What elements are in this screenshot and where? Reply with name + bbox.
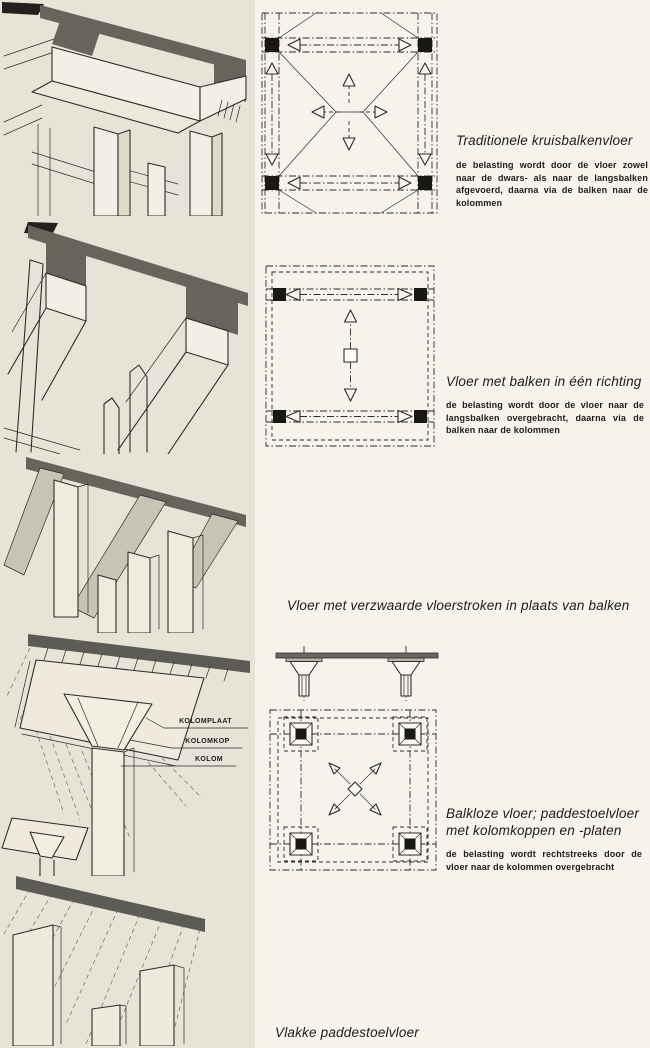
label-kolomkop: KOLOMKOP [170, 737, 245, 746]
load-direction-arrows [344, 310, 357, 401]
kruisbalkenvloer-plan-svg [258, 8, 443, 214]
title-balkloze-vloer-line1: Balkloze vloer; paddestoelvloer [446, 805, 639, 822]
title-balkloze-vloer: Balkloze vloer; paddestoelvloer met kolo… [446, 805, 639, 839]
column-shaft [92, 748, 134, 876]
title-vlakke-paddestoelvloer: Vlakke paddestoelvloer [275, 1025, 419, 1040]
paddestoelvloer-plan-svg [262, 706, 444, 876]
columns [104, 365, 147, 454]
kruisbalkenvloer-isometric-svg [2, 2, 252, 216]
beam-span-arrows [266, 39, 431, 189]
plan-diagram-kruisbalkenvloer [258, 8, 443, 214]
scanned-textbook-page: Traditionele kruisbalkenvloer de belasti… [0, 0, 650, 1048]
second-mushroom-column [2, 818, 88, 876]
columns [13, 925, 184, 1046]
vlakke-paddestoelvloer-isometric-svg [0, 876, 250, 1046]
description-balkloze-vloer: de belasting wordt rechtstreeks door de … [446, 848, 642, 873]
verzwaarde-vloerstroken-isometric-svg [0, 455, 250, 633]
title-balken-een-richting: Vloer met balken in één richting [446, 374, 642, 389]
iso-drawing-vlakke-paddestoelvloer [0, 876, 250, 1046]
corner-columns [265, 38, 432, 190]
description-balken-een-richting: de belasting wordt door de vloer naar de… [446, 399, 644, 437]
iso-drawing-verzwaarde-vloerstroken [0, 455, 250, 633]
columns [38, 124, 222, 216]
title-verzwaarde-vloerstroken: Vloer met verzwaarde vloerstroken in pla… [287, 598, 629, 613]
title-balkloze-vloer-line2: met kolomkoppen en -platen [446, 822, 639, 839]
label-kolom: KOLOM [178, 755, 240, 764]
label-kolomplaat: KOLOMPLAAT [163, 717, 248, 726]
balken-een-richting-isometric-svg [0, 222, 252, 454]
balken-een-richting-plan-svg [260, 262, 440, 452]
title-kruisbalkenvloer: Traditionele kruisbalkenvloer [456, 133, 633, 148]
slab [16, 876, 205, 932]
paddestoelvloer-elevation-svg [262, 644, 444, 704]
load-direction-arrows [329, 763, 381, 815]
description-kruisbalkenvloer: de belasting wordt door de vloer zowel n… [456, 159, 648, 209]
iso-drawing-kruisbalkenvloer [2, 2, 252, 216]
iso-drawing-balken-een-richting [0, 222, 252, 454]
elevation-paddestoelvloer [262, 644, 444, 704]
plan-diagram-balken-een-richting [260, 262, 440, 452]
plan-diagram-paddestoelvloer [262, 706, 444, 876]
